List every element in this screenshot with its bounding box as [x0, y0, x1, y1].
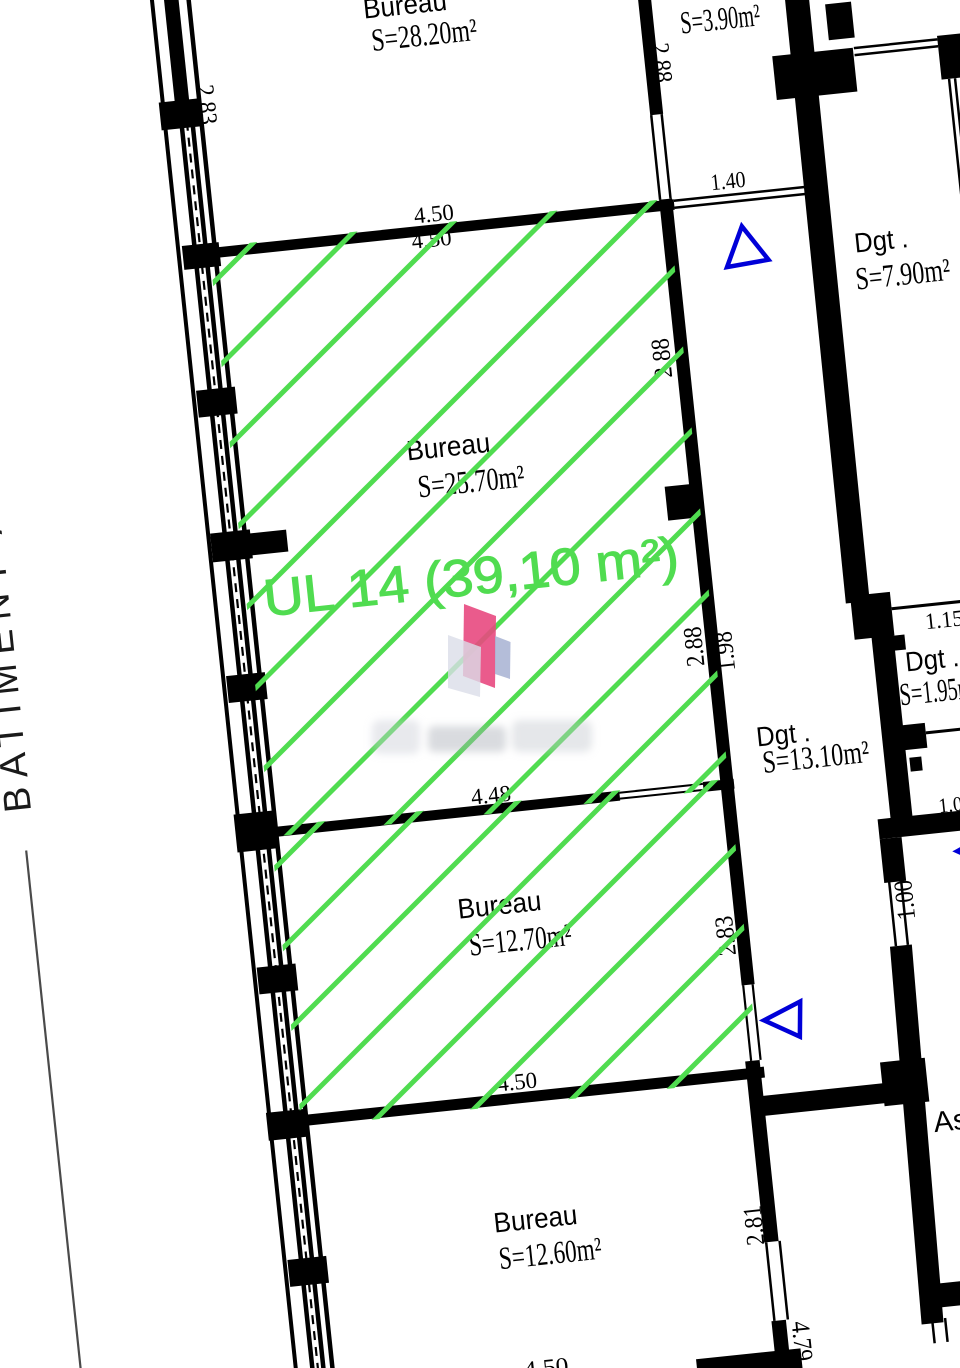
svg-text:S=3.90m²: S=3.90m² [678, 0, 761, 41]
svg-text:4.50: 4.50 [522, 1353, 569, 1368]
svg-text:1.0: 1.0 [937, 791, 960, 817]
svg-text:BATIMENT A: BATIMENT A [0, 499, 40, 814]
svg-text:4.79: 4.79 [786, 1320, 819, 1363]
svg-text:2.88: 2.88 [678, 625, 711, 668]
svg-text:2.81: 2.81 [737, 1204, 770, 1247]
svg-text:S=7.90m²: S=7.90m² [854, 251, 952, 297]
svg-text:Dgt .: Dgt . [853, 222, 910, 258]
svg-text:2.88: 2.88 [645, 41, 678, 84]
svg-text:1.40: 1.40 [709, 167, 746, 196]
svg-text:1.15: 1.15 [924, 605, 960, 634]
svg-text:1.00: 1.00 [888, 879, 921, 922]
svg-text:S=1.95m²: S=1.95m² [898, 668, 960, 712]
svg-text:2.83: 2.83 [190, 83, 223, 126]
svg-text:S=25.70m²: S=25.70m² [416, 458, 526, 505]
svg-text:Ascenseur: Ascenseur [932, 1093, 960, 1139]
svg-text:1.98: 1.98 [708, 630, 741, 673]
